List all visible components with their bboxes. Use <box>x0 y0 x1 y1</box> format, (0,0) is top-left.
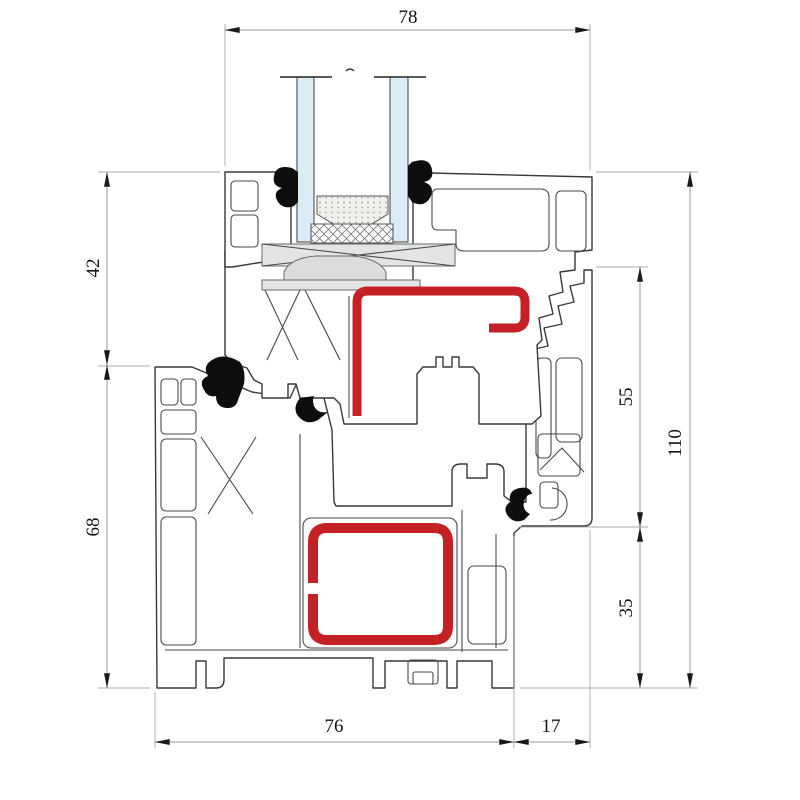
dimension-label: 55 <box>616 388 637 407</box>
dimension-bottom-main: 76 <box>155 716 514 742</box>
profile-section-svg: 78 42 68 55 35 110 76 <box>0 0 800 800</box>
dimension-label: 110 <box>665 429 686 457</box>
dimension-right-upper: 55 <box>616 267 640 527</box>
dimension-top-width: 78 <box>225 7 590 30</box>
dimension-label: 35 <box>616 599 637 618</box>
dimension-label: 68 <box>83 518 104 537</box>
dimension-label: 42 <box>83 259 104 278</box>
dimension-bottom-overlap: 17 <box>514 716 590 742</box>
edge-sealant-hatch <box>311 224 393 243</box>
glass-pane-left <box>297 77 314 242</box>
dimension-label: 78 <box>399 7 418 28</box>
dimension-right-lower: 35 <box>616 527 640 688</box>
glazing-clip <box>284 256 386 280</box>
dimension-left-lower: 68 <box>83 365 107 688</box>
dimension-right-total: 110 <box>665 172 690 688</box>
spacer-bar <box>317 196 388 224</box>
glass-pane-right <box>390 77 408 242</box>
dimension-left-upper: 42 <box>83 172 107 365</box>
screw-port-inner <box>413 672 433 684</box>
dimension-label: 17 <box>542 716 561 737</box>
dimension-label: 76 <box>325 716 344 737</box>
glass-break-mark <box>346 69 354 71</box>
glazing-unit <box>280 69 426 243</box>
technical-drawing: 78 42 68 55 35 110 76 <box>0 0 800 800</box>
